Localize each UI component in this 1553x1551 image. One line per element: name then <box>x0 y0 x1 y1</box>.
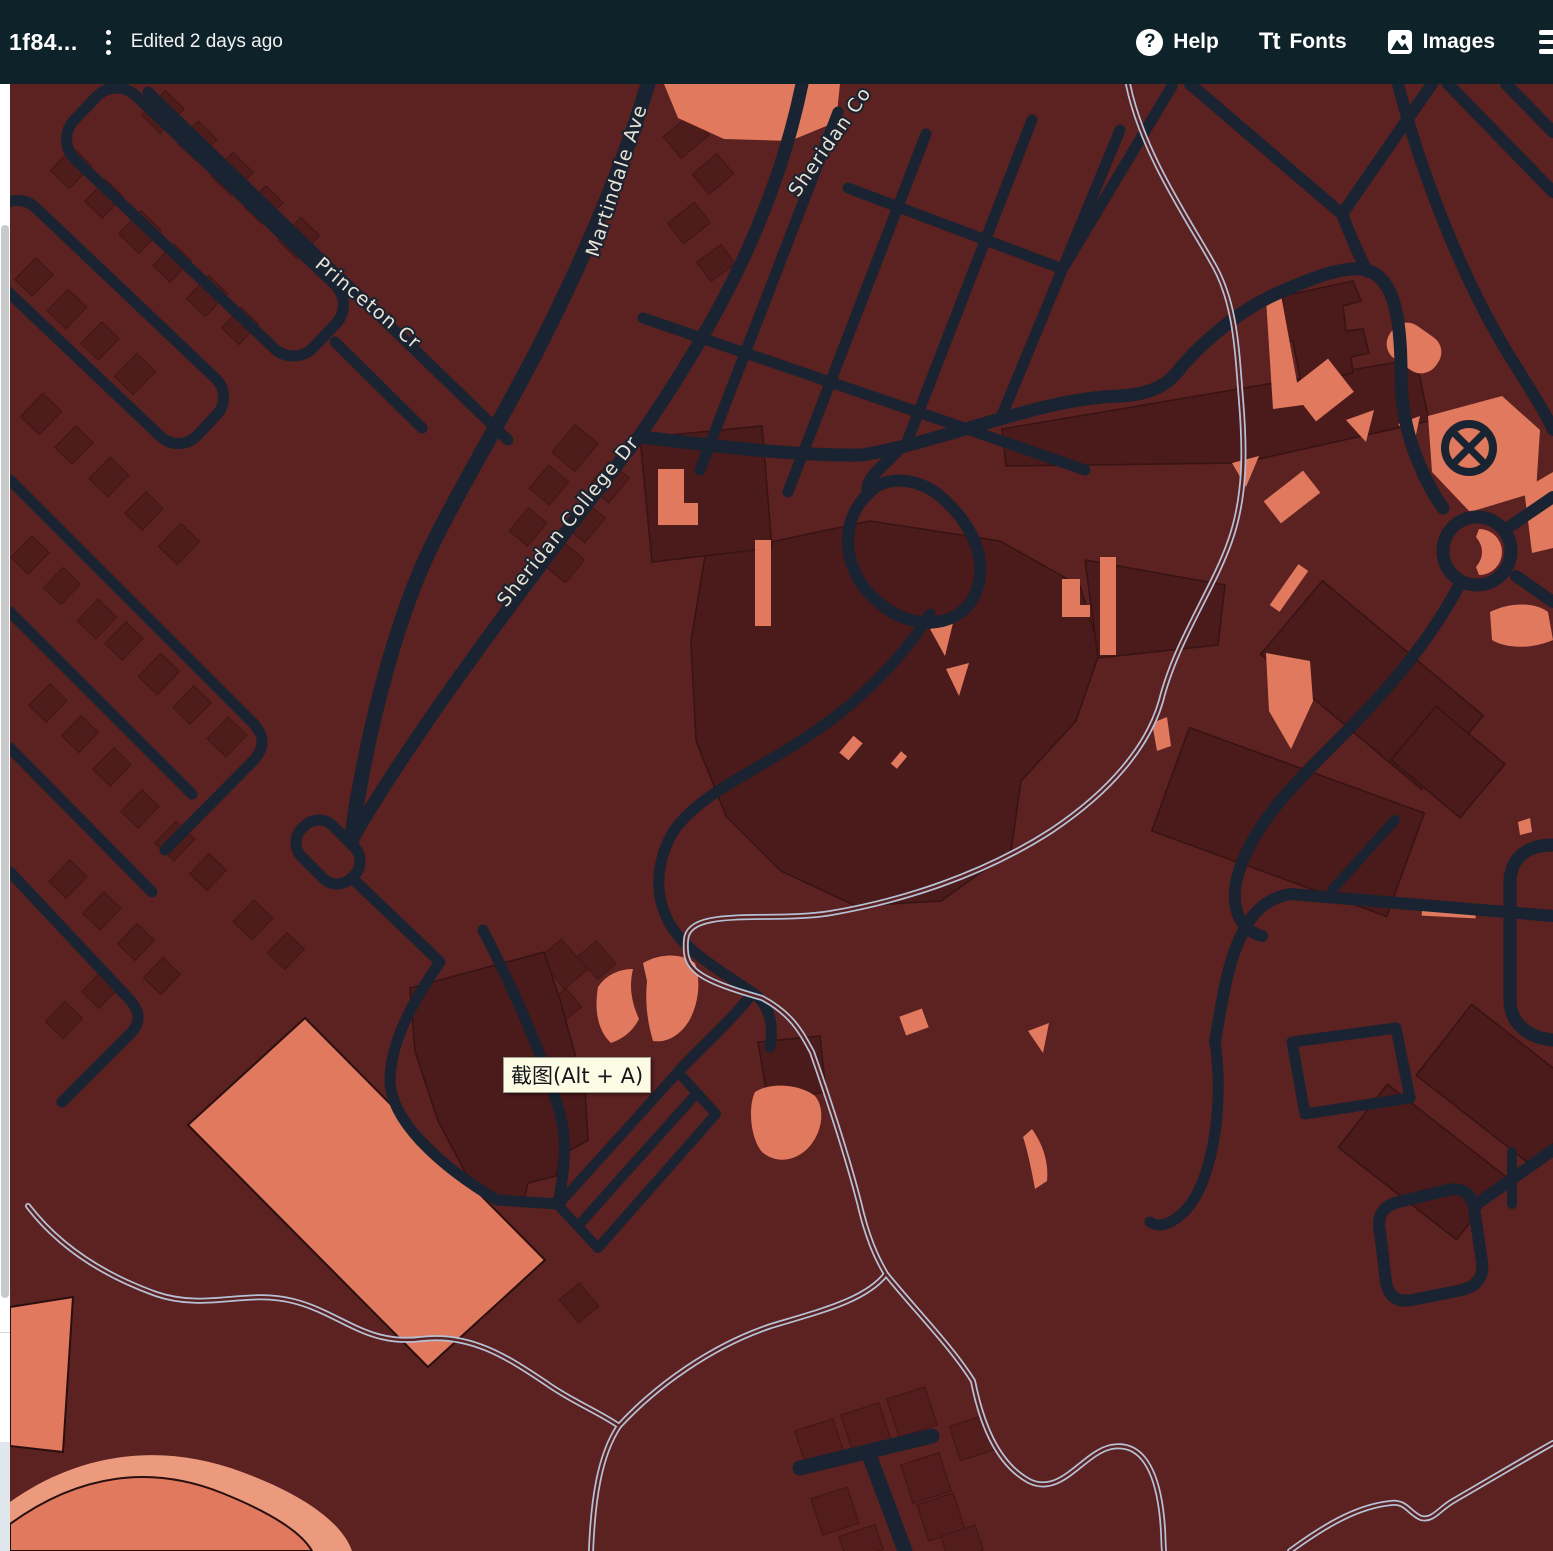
help-button[interactable]: ? Help <box>1136 29 1219 56</box>
screenshot-tooltip-text: 截图(Alt + A) <box>511 1060 643 1090</box>
map-canvas[interactable]: Martindale Ave Princeton Cr Sheridan Col… <box>10 84 1553 1551</box>
left-panel-edge <box>0 84 10 1551</box>
images-icon <box>1387 29 1413 55</box>
images-label: Images <box>1423 30 1495 54</box>
doc-title[interactable]: 0 1f84... <box>0 29 78 56</box>
images-button[interactable]: Images <box>1387 29 1495 55</box>
hamburger-menu-icon[interactable] <box>1539 27 1553 57</box>
fonts-button[interactable]: Tt Fonts <box>1259 28 1347 56</box>
edited-status: Edited 2 days ago <box>131 31 283 53</box>
fonts-icon: Tt <box>1259 28 1280 56</box>
scrollbar-thumb[interactable] <box>1 225 9 1298</box>
help-label: Help <box>1173 30 1219 54</box>
help-icon: ? <box>1136 29 1163 56</box>
kebab-menu-icon[interactable] <box>100 24 117 61</box>
screenshot-tooltip: 截图(Alt + A) <box>503 1057 651 1093</box>
app-window: 0 1f84... Edited 2 days ago ? Help Tt Fo… <box>0 0 1553 1551</box>
fonts-label: Fonts <box>1289 30 1346 54</box>
toolbar: 0 1f84... Edited 2 days ago ? Help Tt Fo… <box>0 0 1553 84</box>
doc-title-text: 1f84... <box>9 29 78 56</box>
